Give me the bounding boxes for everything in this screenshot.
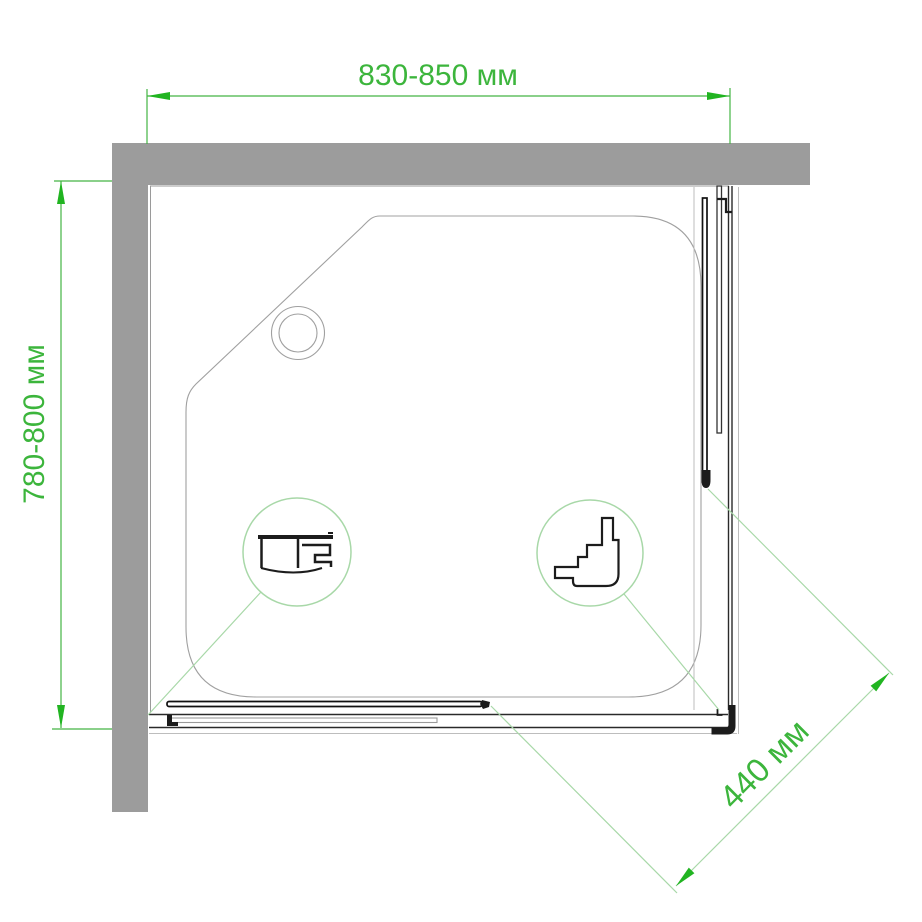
depth-dimension-label: 780-800 мм <box>18 344 51 504</box>
detail-callout-corner-profile <box>537 500 719 710</box>
corner-post-section <box>712 705 736 735</box>
bottom-panel-assembly <box>149 700 737 734</box>
depth-arrow-bottom <box>57 705 65 728</box>
detail-callout-wall-profile <box>148 498 351 715</box>
depth-arrow-top <box>57 181 65 204</box>
entry-extension-upper <box>708 489 893 675</box>
drain-inner-circle <box>279 314 317 352</box>
width-arrow-left <box>147 92 170 100</box>
profile-glass-channel <box>302 545 331 567</box>
corner-profile-section-drawing <box>555 518 619 586</box>
wall-frame-lines <box>150 186 729 712</box>
entry-extension-lower <box>491 706 677 893</box>
technical-drawing-canvas: 830-850 мм 780-800 мм 440 мм <box>0 0 922 922</box>
width-arrow-right <box>707 92 730 100</box>
bottom-door-handle-hook <box>480 700 490 709</box>
right-fixed-panel <box>717 186 722 433</box>
left-wall <box>112 143 148 812</box>
bottom-sliding-door <box>167 702 482 707</box>
width-dimension-label: 830-850 мм <box>358 59 518 92</box>
wall-profile-section-drawing <box>258 533 333 573</box>
detail-leader-right <box>624 594 719 710</box>
right-door-handle-knob <box>702 470 711 488</box>
corner-profile <box>712 705 736 735</box>
top-wall <box>112 143 810 185</box>
entry-dimension-line <box>676 673 889 886</box>
tray-inner-surface <box>186 216 701 697</box>
shower-enclosure-top-view: 830-850 мм 780-800 мм 440 мм <box>0 0 922 922</box>
profile-bottom-arc <box>261 568 322 573</box>
right-sliding-door <box>703 198 708 482</box>
dimension-depth: 780-800 мм <box>18 181 112 729</box>
dimension-width: 830-850 мм <box>147 59 730 144</box>
shower-tray <box>186 216 701 697</box>
bottom-fixed-panel <box>171 718 437 723</box>
dimension-entry: 440 мм <box>491 489 893 893</box>
